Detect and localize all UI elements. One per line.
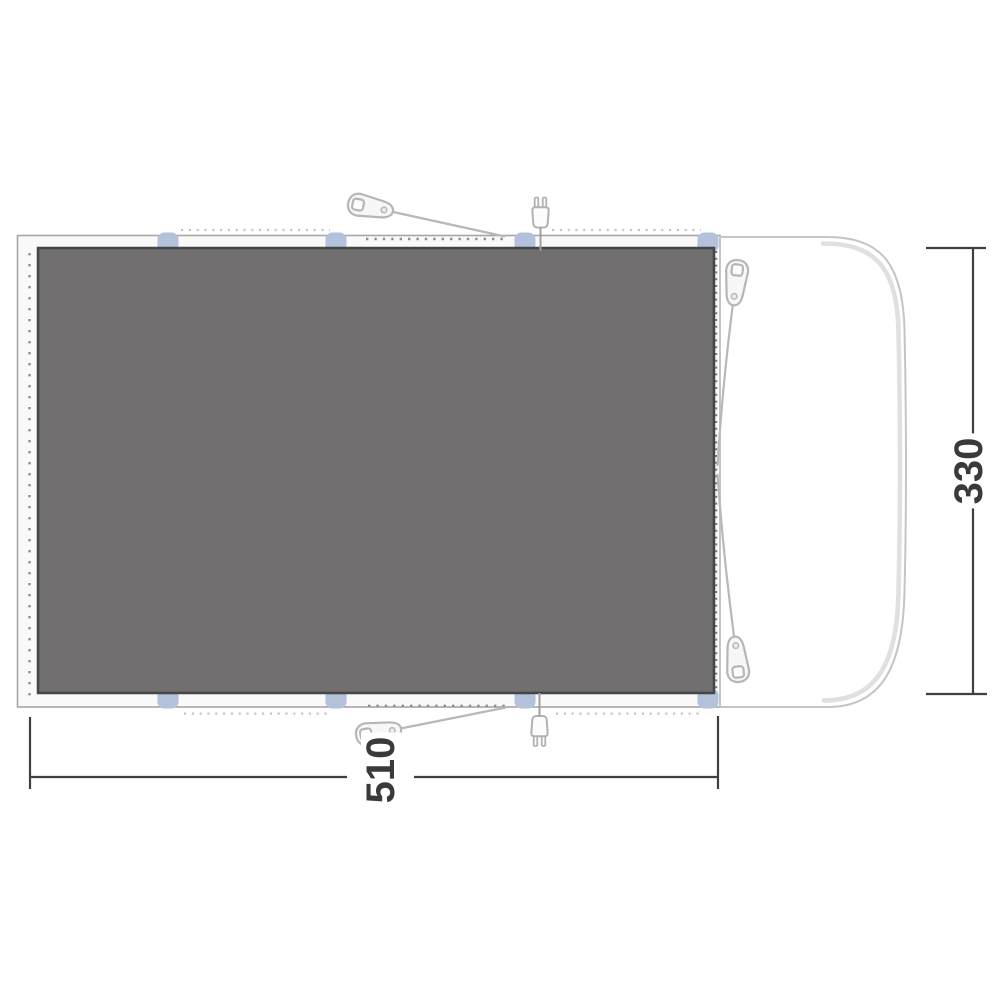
groundsheet-mat <box>38 248 714 693</box>
vehicle-body-line <box>720 237 906 707</box>
diagram-canvas <box>0 0 1000 1000</box>
vehicle-outline <box>720 237 906 707</box>
length-dimension-label: 330 <box>949 434 989 509</box>
guy-rope <box>398 708 506 730</box>
width-dimension-label: 510 <box>361 733 401 808</box>
guy-rope <box>391 212 505 237</box>
floorplan-diagram: 510 330 <box>0 0 1000 1000</box>
guyline-toggle-icon <box>346 192 395 222</box>
